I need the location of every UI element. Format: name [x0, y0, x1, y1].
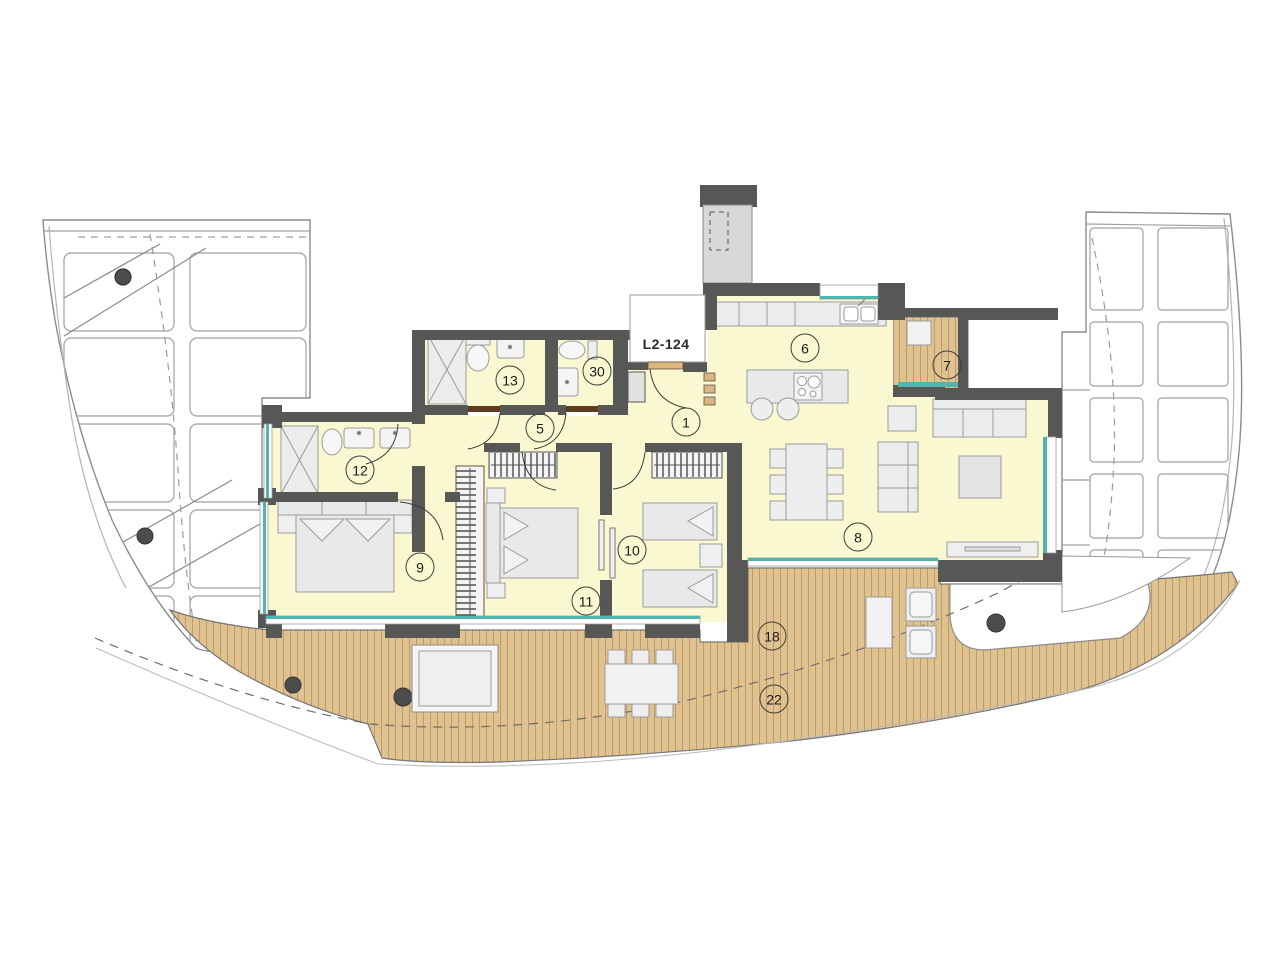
closet-room10	[652, 452, 722, 478]
deck-daybed	[412, 645, 498, 712]
door-leaf	[566, 406, 598, 412]
terrace-light-fixture	[115, 269, 131, 285]
right-neighbor-terrace	[1062, 212, 1242, 590]
stool	[777, 398, 799, 420]
tv-sideboard	[947, 542, 1038, 557]
entry-switches	[704, 373, 715, 405]
sofa-vertical	[878, 442, 918, 512]
service-shaft	[700, 185, 757, 283]
entry-cabinet	[628, 372, 645, 402]
toilet	[467, 345, 489, 371]
unit-label: L2-124	[643, 336, 690, 352]
stool	[751, 398, 773, 420]
floor-plan-drawing	[0, 0, 1280, 960]
deck-dining-set	[605, 650, 678, 717]
terrace7-table	[907, 321, 931, 345]
floor-plan: 15678910111213182230 L2-124	[0, 0, 1280, 960]
entry-threshold	[648, 362, 683, 369]
ottoman	[959, 456, 1001, 498]
sofa-top	[933, 399, 1026, 437]
wardrobe-room9	[456, 466, 484, 620]
dining-table	[770, 444, 843, 520]
bed-room9	[278, 500, 412, 592]
door-leaf	[468, 406, 500, 412]
kitchen-counter	[712, 298, 886, 326]
toilet	[559, 341, 585, 359]
armchair	[888, 406, 916, 431]
toilet	[322, 429, 342, 455]
